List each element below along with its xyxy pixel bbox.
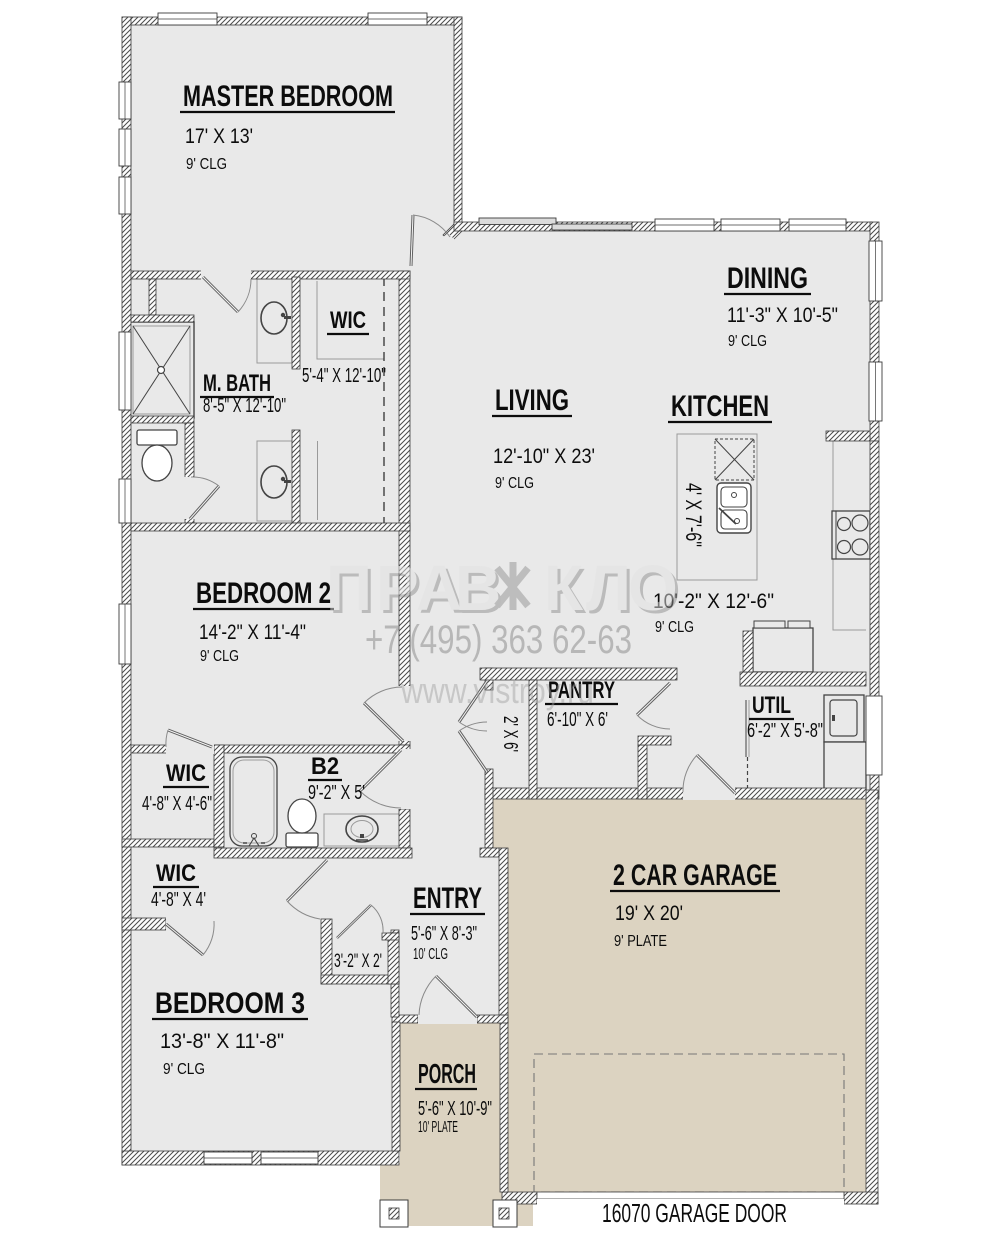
svg-text:17' X 13': 17' X 13' (185, 125, 253, 148)
svg-text:9' PLATE: 9' PLATE (614, 933, 667, 950)
svg-text:4'-8" X 4'-6": 4'-8" X 4'-6" (142, 793, 212, 815)
svg-text:9' CLG: 9' CLG (495, 475, 534, 492)
svg-text:WIC: WIC (330, 307, 366, 334)
svg-text:PORCH: PORCH (418, 1058, 476, 1089)
svg-text:16070 GARAGE DOOR: 16070 GARAGE DOOR (602, 1198, 787, 1228)
svg-text:13'-8" X 11'-8": 13'-8" X 11'-8" (160, 1030, 284, 1053)
svg-text:DINING: DINING (727, 262, 808, 295)
svg-text:UTIL: UTIL (752, 692, 791, 719)
svg-text:5'-6" X 8'-3": 5'-6" X 8'-3" (411, 923, 477, 945)
svg-text:9'-2" X 5': 9'-2" X 5' (308, 782, 365, 804)
svg-text:В: В (455, 552, 501, 624)
svg-text:2' X 6': 2' X 6' (499, 716, 521, 752)
svg-text:4' X 7'-6": 4' X 7'-6" (681, 483, 706, 547)
svg-text:WIC: WIC (156, 860, 196, 887)
svg-text:К: К (544, 552, 584, 624)
svg-text:BEDROOM 3: BEDROOM 3 (155, 987, 305, 1020)
svg-text:О: О (628, 552, 678, 624)
svg-text:19' X 20': 19' X 20' (615, 902, 683, 925)
svg-text:LIVING: LIVING (495, 384, 569, 417)
svg-text:5'-4" X 12'-10": 5'-4" X 12'-10" (302, 365, 386, 387)
svg-text:9' CLG: 9' CLG (186, 156, 227, 173)
svg-text:2 CAR GARAGE: 2 CAR GARAGE (613, 859, 777, 892)
svg-text:5'-6" X 10'-9": 5'-6" X 10'-9" (418, 1098, 492, 1120)
svg-text:4'-8" X 4': 4'-8" X 4' (151, 889, 206, 911)
svg-text:8'-5" X 12'-10": 8'-5" X 12'-10" (203, 395, 286, 417)
svg-text:П: П (326, 552, 372, 624)
svg-text:9' CLG: 9' CLG (728, 333, 767, 350)
svg-text:www.vistroy.ru: www.vistroy.ru (400, 670, 594, 711)
svg-text:+7 (495) 363 62-63: +7 (495) 363 62-63 (365, 618, 632, 662)
svg-text:KITCHEN: KITCHEN (671, 390, 769, 423)
svg-text:12'-10" X 23': 12'-10" X 23' (493, 445, 595, 468)
svg-text:B2: B2 (311, 753, 339, 780)
svg-text:6'-10" X 6': 6'-10" X 6' (547, 709, 608, 731)
svg-text:WIC: WIC (166, 760, 206, 787)
svg-text:14'-2" X 11'-4": 14'-2" X 11'-4" (199, 621, 306, 644)
svg-text:M. BATH: M. BATH (203, 370, 271, 397)
svg-text:Р: Р (376, 552, 419, 624)
svg-text:ENTRY: ENTRY (413, 882, 482, 915)
svg-text:9' CLG: 9' CLG (200, 648, 239, 665)
svg-text:Л: Л (586, 552, 631, 624)
svg-text:11'-3" X 10'-5": 11'-3" X 10'-5" (727, 304, 838, 327)
svg-text:9' CLG: 9' CLG (163, 1061, 205, 1078)
svg-text:3'-2" X 2': 3'-2" X 2' (334, 951, 382, 972)
svg-text:10' PLATE: 10' PLATE (418, 1119, 458, 1136)
svg-text:BEDROOM 2: BEDROOM 2 (196, 577, 331, 610)
svg-text:6'-2" X 5'-8": 6'-2" X 5'-8" (747, 720, 823, 742)
svg-text:MASTER BEDROOM: MASTER BEDROOM (183, 80, 393, 113)
svg-text:10' CLG: 10' CLG (413, 946, 448, 963)
